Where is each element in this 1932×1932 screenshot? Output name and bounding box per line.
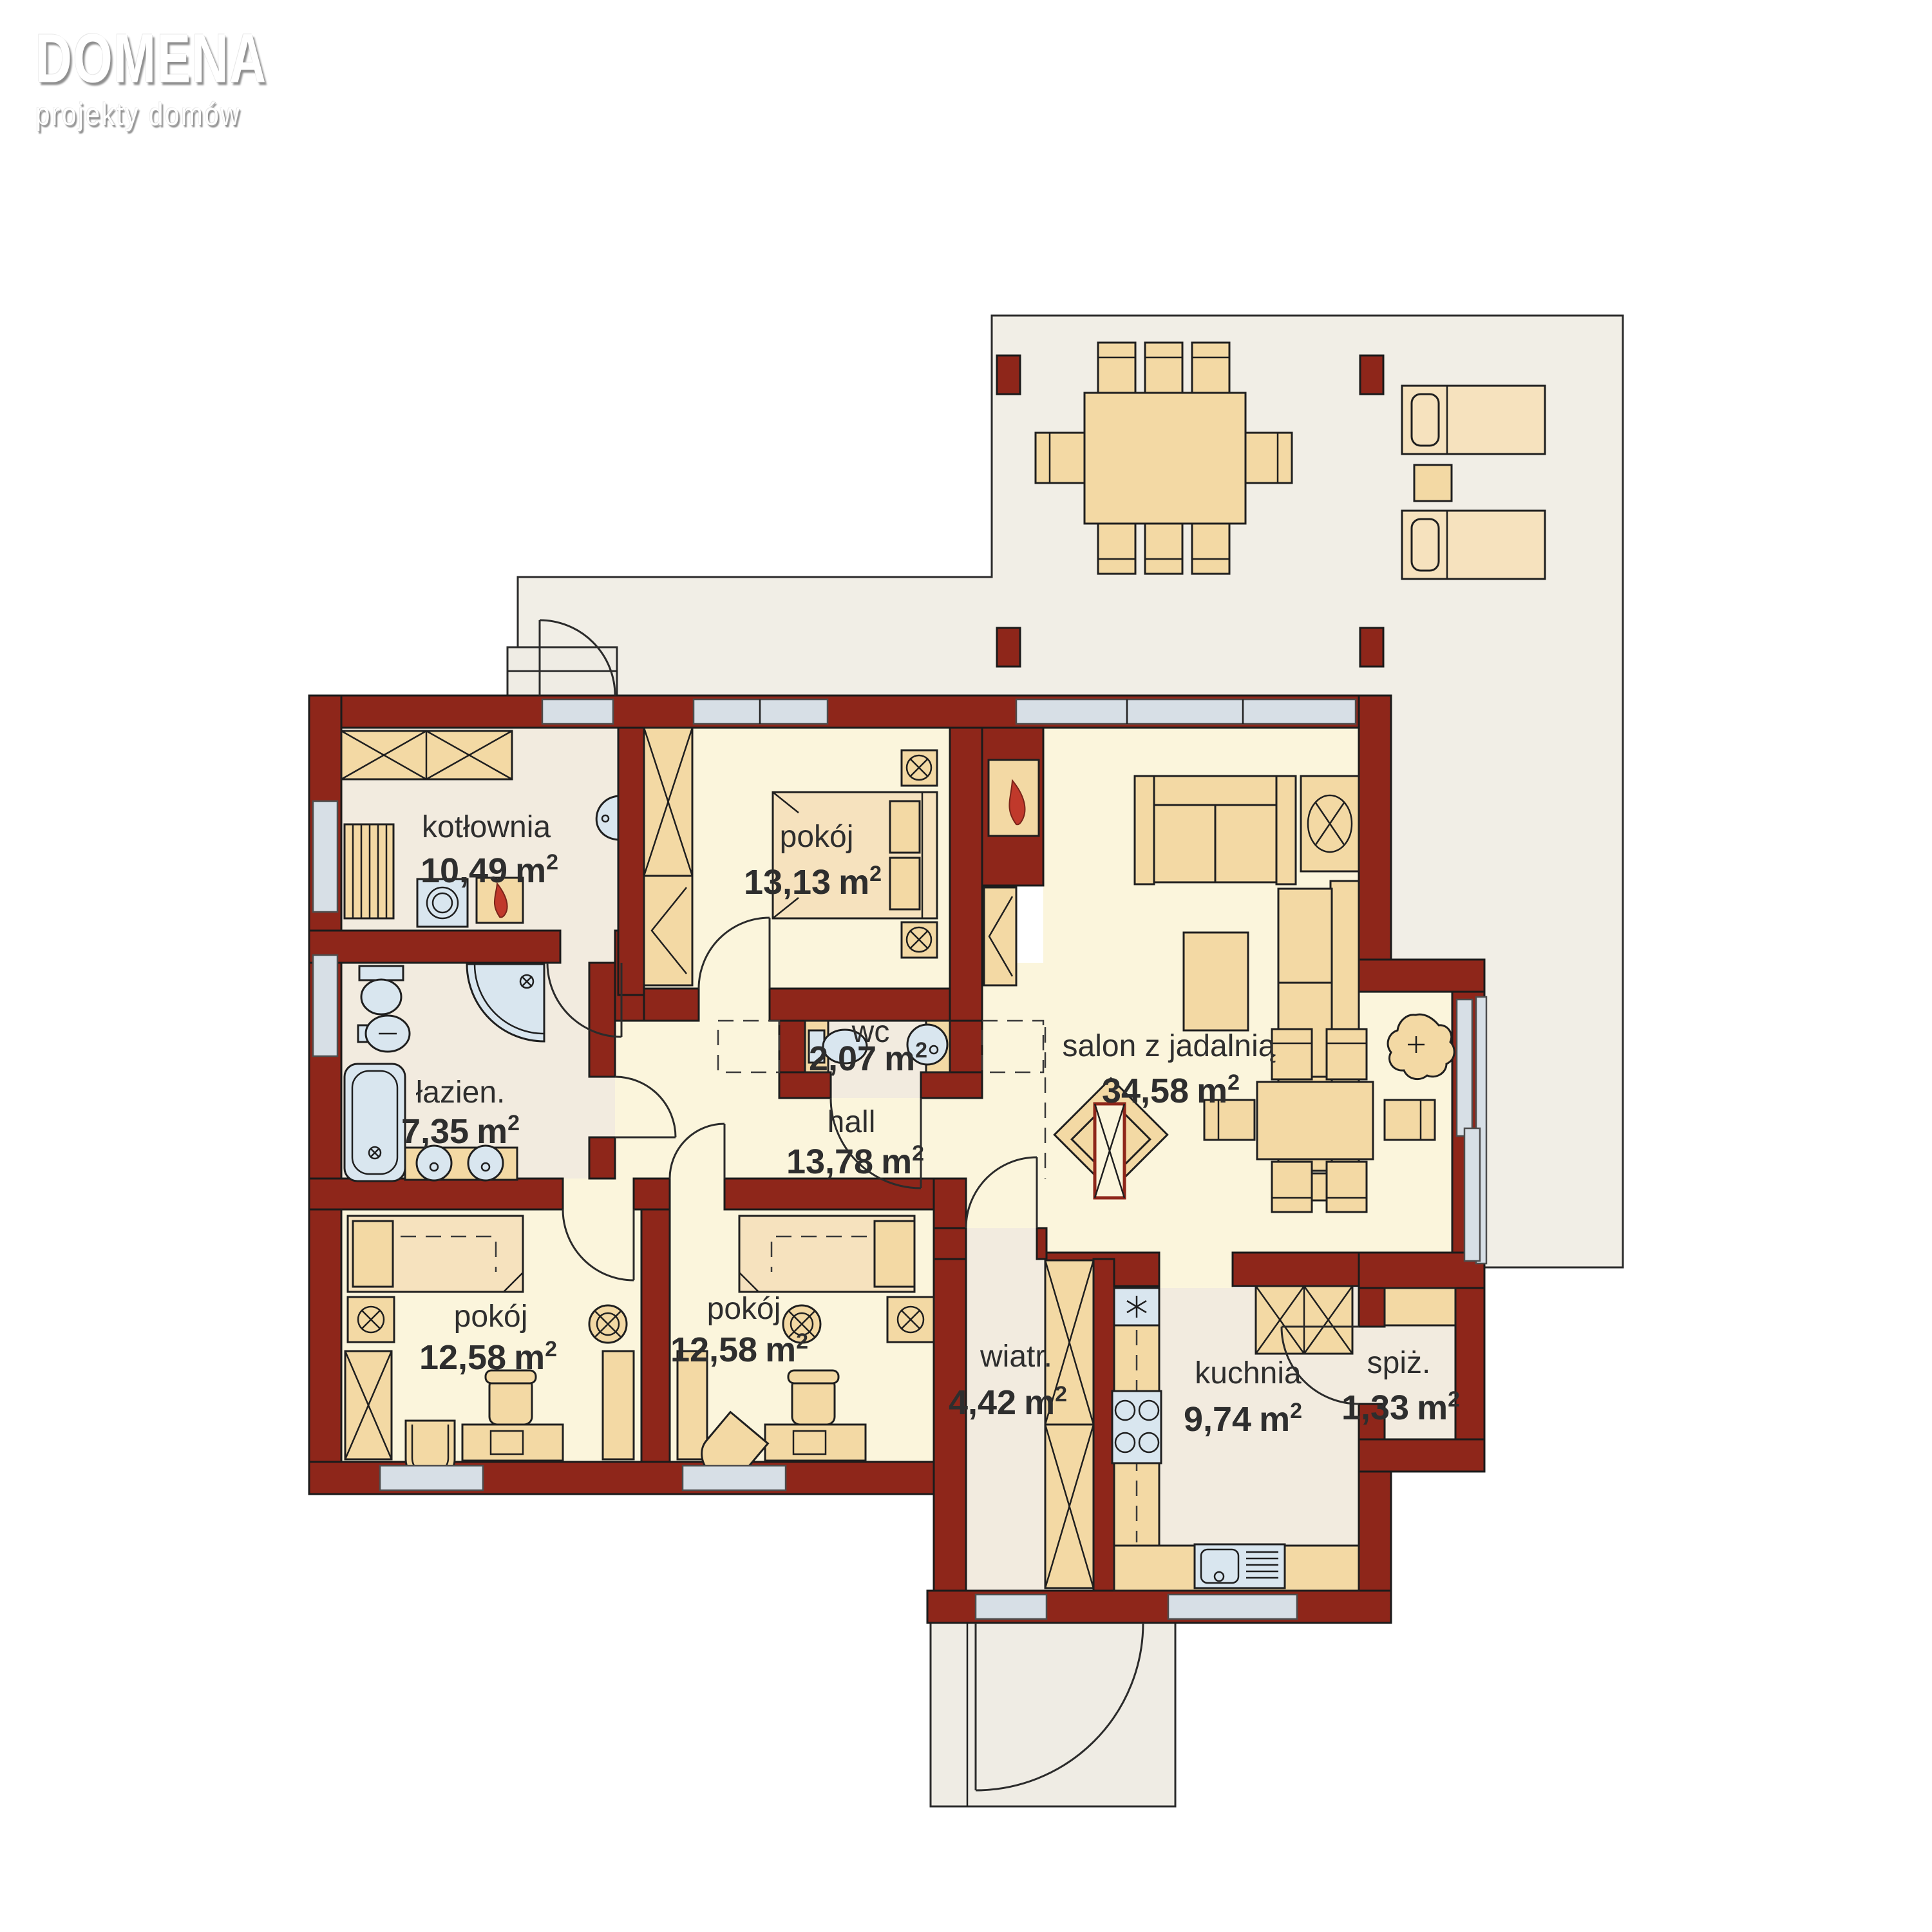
nightstand-lamp-icon: [902, 922, 937, 958]
room-area: 2,07m2: [809, 1038, 927, 1078]
wardrobe-icon: [644, 728, 692, 985]
room-area: 13,78m2: [786, 1141, 924, 1181]
room-area: 10,49m2: [421, 850, 558, 890]
toilet-icon: [359, 966, 403, 1014]
room-area: 34,58m2: [1102, 1070, 1240, 1110]
single-bed-icon: [348, 1216, 523, 1292]
double-sink-icon: [405, 1146, 517, 1180]
terrace-post: [997, 355, 1020, 394]
kitchen-sink-icon: [1195, 1544, 1285, 1588]
garden-door: [542, 699, 613, 724]
sun-lounger-icon: [1402, 386, 1545, 454]
sofa-icon: [1135, 776, 1296, 884]
ceiling-lamp-icon: [589, 1305, 627, 1343]
stove-icon: [1112, 1391, 1161, 1463]
extractor-icon: [1114, 1288, 1159, 1325]
floor-plan: kotłownia 10,49m2 pokój 13,13m2 salon z …: [0, 0, 1932, 1932]
room-label: spiż.: [1367, 1346, 1431, 1380]
office-chair-icon: [486, 1370, 536, 1425]
room-area: 1,33m2: [1341, 1387, 1460, 1427]
office-chair-icon: [788, 1370, 838, 1425]
terrace-post: [1360, 355, 1383, 394]
passage-salon-kuchnia: [1159, 1253, 1233, 1288]
room-label: salon z jadalnią: [1063, 1029, 1276, 1063]
wiatrolap-wardrobe-icon: [1045, 1260, 1094, 1588]
room-label: kotłownia: [422, 810, 551, 844]
wardrobe-icon: [345, 1351, 392, 1459]
room-label: hall: [828, 1105, 876, 1139]
room-area: 4,42m2: [949, 1382, 1067, 1422]
room-area: 13,13m2: [744, 862, 882, 902]
window: [313, 955, 337, 1056]
nightstand-lamp-icon: [902, 750, 937, 786]
room-label: pokój: [780, 820, 854, 854]
sun-lounger-icon: [1402, 511, 1545, 579]
room-area: 12,58m2: [419, 1337, 557, 1377]
desk-icon: [462, 1425, 563, 1461]
room-label: pokój: [454, 1300, 528, 1334]
single-bed-icon: [739, 1216, 914, 1292]
terrace-post: [997, 628, 1020, 667]
entrance-steps: [931, 1623, 1175, 1806]
nightstand-lamp-icon: [348, 1297, 394, 1342]
room-label: łazien.: [416, 1075, 506, 1110]
room-label: wiatr.: [980, 1340, 1052, 1374]
nightstand-lamp-icon: [887, 1297, 934, 1342]
shelf-icon: [603, 1351, 634, 1459]
pantry-shelf-icon: [1385, 1288, 1455, 1325]
shelf-icon: [341, 731, 512, 779]
heater-icon: [1095, 1104, 1124, 1198]
wardrobe-icon: [1256, 1286, 1352, 1354]
coffee-table-icon: [1184, 933, 1248, 1030]
desk-icon: [765, 1425, 866, 1461]
room-area: 12,58m2: [670, 1329, 808, 1369]
terrace-post: [1360, 628, 1383, 667]
room-area: 7,35m2: [401, 1111, 520, 1151]
entrance-door-glass: [976, 1595, 1046, 1619]
window: [380, 1466, 483, 1490]
window: [1168, 1595, 1297, 1619]
ceiling-lamp-icon: [1301, 776, 1359, 871]
window: [1016, 699, 1356, 724]
room-label: pokój: [707, 1292, 781, 1326]
entry-step: [507, 647, 617, 696]
room-area: 9,74m2: [1184, 1399, 1302, 1439]
lounger-side-table-icon: [1414, 465, 1452, 501]
window: [683, 1466, 786, 1490]
room-label: kuchnia: [1195, 1356, 1302, 1390]
window: [694, 699, 828, 724]
radiator-icon: [345, 824, 393, 918]
window: [313, 801, 337, 912]
bathtub-icon: [345, 1064, 405, 1181]
